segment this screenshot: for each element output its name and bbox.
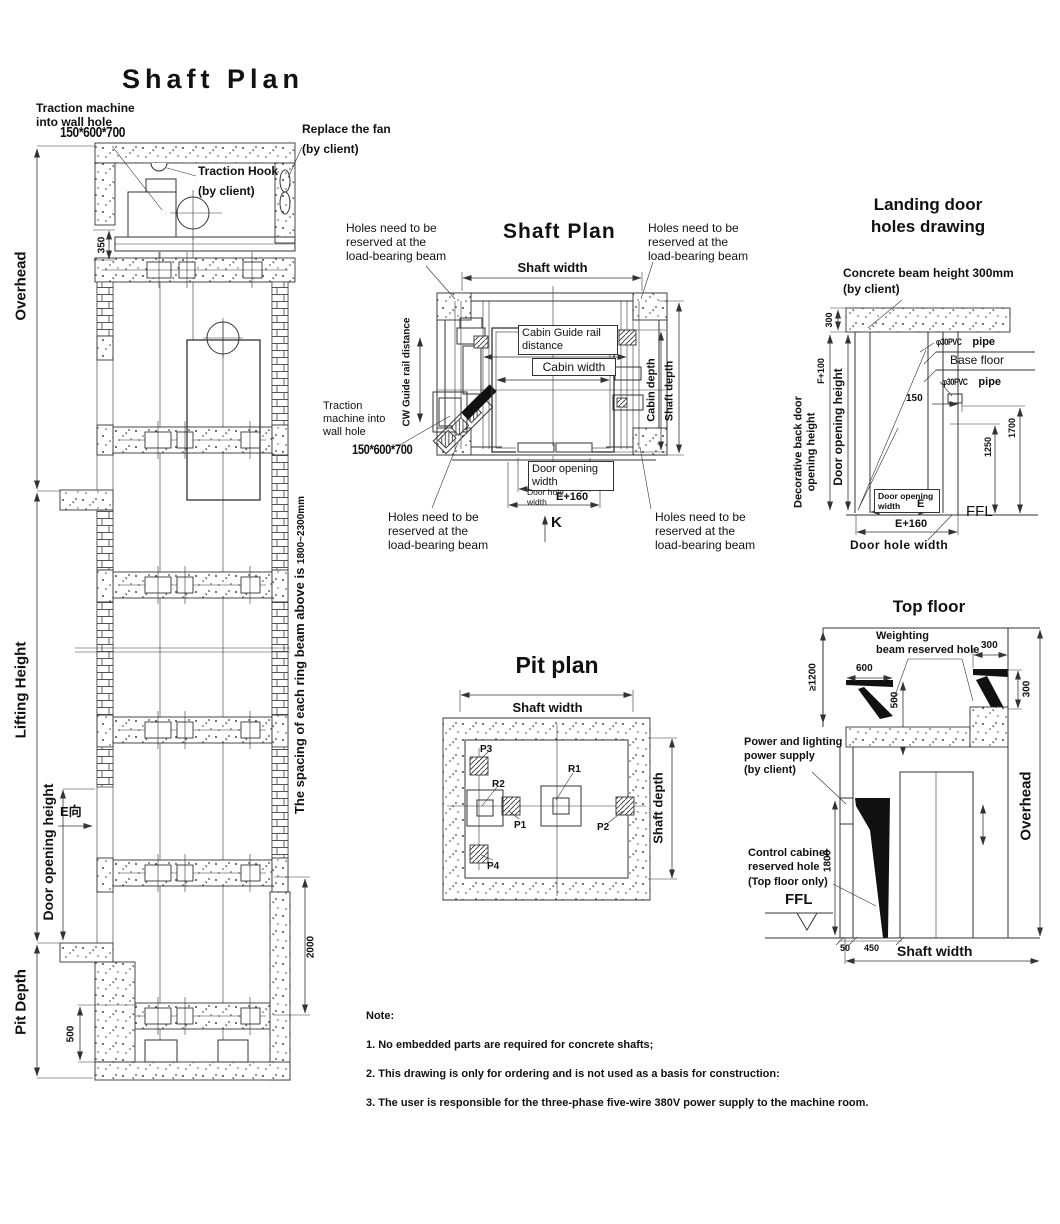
holes-note-top-left: Holes need to be reserved at the load-be… [346,221,446,263]
pit-title: Pit plan [497,652,617,679]
note-item-1: 1. No embedded parts are required for co… [366,1039,653,1052]
dim-600: 600 [856,663,873,675]
marker-p1: P1 [514,820,526,832]
plan-traction-machine-size: 150*600*700 [352,441,412,458]
landing-title: Landing door holes drawing [843,194,1013,238]
note-item-3: 3. The user is responsible for the three… [366,1097,868,1110]
door-opening-height-label: Door opening height [40,784,56,921]
cabin-depth-label: Cabin depth [646,358,659,422]
top-floor-title: Top floor [879,597,979,617]
note-item-2: 2. This drawing is only for ordering and… [366,1068,780,1081]
pipe-label-2: φ30PVC pipe [942,372,1001,391]
pit-shaft-width-label: Shaft width [500,700,595,715]
base-floor-label: Base floor [950,353,1004,367]
cabin-width-label: Cabin width [532,358,616,376]
pit-depth-label: Pit Depth [12,969,29,1035]
landing-dim-150: 150 [906,393,923,405]
holes-note-bottom-right: Holes need to be reserved at the load-be… [655,510,755,552]
marker-p4: P4 [487,861,499,873]
decorative-back-door-label: Decorative back door opening height [792,396,817,508]
landing-ffl-label: FFL [966,503,993,521]
plan-traction-machine-label: Traction machine into wall hole [323,400,385,439]
dim-1800: 1800 [822,850,834,872]
landing-dim-f100: F+100 [816,358,826,384]
pit-plan-view [443,690,677,900]
holes-note-bottom-left: Holes need to be reserved at the load-be… [388,510,488,552]
landing-door-opening-width-label: Door opening width [874,489,940,513]
top-floor-overhead-label: Overhead [1017,771,1034,840]
marker-p2: P2 [597,822,609,834]
landing-dim-300: 300 [824,312,834,327]
notes-heading: Note: [366,1010,394,1023]
cw-guide-rail-label: CW Guide rail distance [401,318,413,427]
dim-300-height: 300 [1021,681,1033,698]
replace-fan-label: Replace the fan (by client) [302,124,391,155]
plan-shaft-depth-label: Shaft depth [664,361,677,422]
pipe-size-1: φ30PVC [936,337,962,348]
pit-shaft-depth-label: Shaft depth [652,772,667,844]
marker-r2: R2 [492,779,505,791]
pipe-size-2: φ30PVC [942,377,968,388]
weighting-beam-label: Weighting beam reserved hole [876,629,979,658]
cabin-guide-rail-label: Cabin Guide rail distance [518,325,618,355]
landing-door-opening-height-label: Door opening height [832,368,846,485]
ring-beam-note-text: The spacing of each ring beam above is [292,564,307,814]
top-floor-shaft-width-label: Shaft width [897,943,972,960]
landing-dim-1250: 1250 [983,437,993,457]
overhead-label: Overhead [12,251,29,320]
e-direction-label: E向 [60,804,82,819]
concrete-beam-note: Concrete beam height 300mm (by client) [843,266,1014,297]
dim-ge1200: ≥1200 [807,663,819,691]
holes-note-top-right: Holes need to be reserved at the load-be… [648,221,748,263]
ring-beam-spacing-value: 1800~2300mm [296,496,307,564]
elevation-view [37,143,310,1080]
dim-2000: 2000 [305,936,317,958]
traction-hook-label: Traction Hook (by client) [198,166,278,197]
door-hole-width-value: E+160 [556,491,588,504]
dim-50: 50 [840,943,850,954]
shaft-plan-drawing-sheet: .ln{stroke:#333;fill:none;stroke-width:1… [0,0,1060,1224]
top-floor-ffl-label: FFL [785,891,813,909]
section-mark-k: K [551,514,562,532]
dim-500-top: 500 [889,692,901,709]
marker-r1: R1 [568,764,581,776]
pipe-word-1: pipe [972,336,995,348]
landing-dim-1700: 1700 [1007,418,1017,438]
dim-350: 350 [96,237,108,254]
lifting-height-label: Lifting Height [12,642,29,739]
landing-dim-e: E [917,498,924,511]
pipe-label-1: φ30PVC pipe [936,332,995,351]
landing-door-hole-width-label: Door hole width [850,538,948,552]
pipe-word-2: pipe [978,376,1001,388]
landing-dim-e160: E+160 [895,518,927,531]
dim-450: 450 [864,943,879,954]
plan-shaft-width-label: Shaft width [505,260,600,275]
marker-p3: P3 [480,744,492,756]
elevation-title: Shaft Plan [122,64,304,96]
ring-beam-note: The spacing of each ring beam above is 1… [291,496,309,814]
dim-500: 500 [65,1026,77,1043]
dim-300-width: 300 [981,640,998,652]
top-floor-view [765,628,1040,964]
traction-machine-size: 150*600*700 [60,124,125,142]
power-supply-label: Power and lighting power supply (by clie… [744,736,842,777]
plan-title: Shaft Plan [503,220,616,245]
control-cabinet-label: Control cabinet reserved hole (Top floor… [748,846,829,889]
